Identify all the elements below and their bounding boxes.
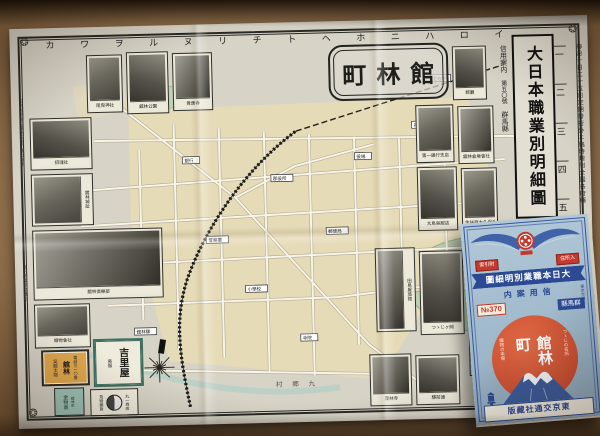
photo-image (460, 108, 491, 151)
photo-image (372, 356, 409, 393)
photo-tile: 招魂社 (29, 117, 92, 170)
grid-letter: ヘ (322, 32, 331, 45)
slogan-right: つゝじの名所 (562, 329, 570, 356)
grid-letter: ワ (80, 38, 89, 51)
photo-image (175, 55, 210, 98)
ad-line: 舘林 (60, 361, 70, 375)
ad-line: 舘林町 (71, 396, 76, 407)
corner-rosette-icon: ❂ (28, 409, 37, 420)
district-label: 村 郷 九 (276, 379, 319, 389)
photo-image (34, 176, 81, 223)
cover-side-note: 東京交通社 (579, 284, 591, 354)
photo-image (129, 54, 166, 101)
grid-letter: ヌ (184, 36, 193, 49)
map-booklet-cover: 索引附 住所入 圖細明別業職本日大 内案用信 №370 縣馬群 館林町 つゝじの… (460, 213, 600, 427)
ad-line: 荒物雜貨 (98, 394, 104, 410)
photo-caption: 舘林公園 (130, 100, 166, 111)
publisher-note: 發行所東京交通社 (18, 265, 30, 375)
ad-side-label: 吳服 (107, 358, 113, 367)
corner-rosette-icon: ❂ (19, 38, 28, 49)
subtitle-line: 信用案内 (497, 45, 508, 73)
photo-tile: 尾曳神社 (86, 54, 123, 113)
photo-tile: 舘林公園 (126, 51, 170, 114)
ad-box-yoshizatoya: 吳服 吉里屋 (93, 338, 144, 387)
map-title: 大日本職業別明細圖 (521, 45, 549, 208)
photo-caption: 舘林倶樂部 (37, 285, 161, 298)
subtitle-line: 群馬縣 (499, 111, 510, 132)
ad-line: 金物商 (62, 394, 69, 409)
photo-caption: 大島吳服店 (421, 217, 455, 228)
grid-number: 五 (557, 198, 570, 213)
photo-image (35, 231, 160, 288)
photo-scene: 舘林驛 郡役所 警察署 郵便局 小學校 役場 銀行 寺院 神社 至佐野 城沼 村… (0, 0, 600, 436)
grid-letter: ホ (356, 31, 365, 44)
grid-number: 一 (553, 46, 566, 61)
grid-number: 四 (556, 160, 569, 175)
photo-tile: 茂林寺 (369, 353, 412, 406)
photo-image (420, 169, 455, 218)
photo-image (418, 107, 451, 150)
photo-caption: 郡廳 (456, 87, 484, 98)
station-mark (158, 339, 166, 354)
ad-box-grocer: 荒物雜貨 丸一商店 (90, 388, 139, 416)
photo-tile: 織物會社 (34, 303, 91, 348)
photo-caption: 招魂社 (33, 156, 89, 167)
photo-caption: 田島屋旅館 (402, 250, 414, 328)
photo-image (422, 253, 462, 322)
photo-image (455, 49, 484, 88)
address-tag: 住所入 (556, 253, 580, 266)
grid-letter: イ (494, 28, 503, 41)
photo-tile: 田島屋旅館 (375, 247, 417, 332)
photo-tile: 舘林倉庫會社 (457, 105, 494, 164)
photo-caption: つゝじヶ岡 (423, 321, 461, 332)
grid-number: 二 (554, 84, 567, 99)
ad-line: 丸一商店 (124, 394, 130, 410)
ad-logo-circle (106, 394, 122, 410)
photo-tile: 舘林城趾 (31, 173, 94, 226)
legend-note: 記號說明官公署學校銀行會社商店 (14, 99, 27, 249)
photo-tile: 大島吳服店 (417, 166, 459, 231)
grid-letter: カ (45, 39, 54, 52)
ad-box-hardware: 金物商 舘林町 (54, 387, 85, 416)
grid-letter: ニ (391, 31, 400, 44)
photo-image (32, 120, 89, 157)
photo-tile: 第一銀行支店 (415, 104, 454, 163)
photo-image (89, 57, 120, 100)
publisher-banner: 版藏社通交京東 (484, 397, 595, 423)
ad-line: 吳服太物 (52, 359, 58, 377)
photo-caption: 茂林寺 (373, 392, 409, 403)
ad-shop-name: 吉里屋 (115, 347, 131, 377)
photo-caption: 驛前通 (419, 391, 457, 402)
grid-letter: ル (149, 36, 158, 49)
ad-line: 電話三一〇番 (72, 356, 79, 380)
serial-number: №370 (477, 303, 507, 317)
map-title-box: 大日本職業別明細圖 (511, 34, 557, 219)
grid-letter: ハ (425, 30, 434, 43)
photo-tile: 郡廳 (452, 45, 487, 100)
ad-box-draper: 吳服太物 舘林 電話三一〇番 (41, 349, 90, 386)
photo-image (464, 170, 495, 217)
index-tag: 索引附 (475, 259, 499, 272)
photo-caption: 織物會社 (38, 334, 88, 345)
photo-caption: 第一銀行支店 (419, 149, 451, 160)
grid-number: 三 (555, 122, 568, 137)
photo-caption: 尾曳神社 (90, 99, 120, 110)
town-name-cartouche: 町林館 (328, 42, 449, 101)
cartouche-inner-border (333, 48, 444, 97)
publication-note: 毎月十日二十五日定期發行外ニ臨時增刊全國各府縣 (574, 43, 587, 223)
photo-caption: 覺應寺 (176, 97, 210, 108)
photo-tile: 驛前通 (415, 354, 460, 405)
grid-letter: チ (253, 34, 262, 47)
grid-letter: ヲ (114, 37, 123, 50)
photo-tile: 覺應寺 (172, 52, 213, 111)
photo-tile: 舘林倶樂部 (32, 227, 164, 300)
photo-caption: 舘林城趾 (80, 176, 91, 222)
slogan-left: 織物の本場 (498, 338, 506, 361)
grid-letter: ト (287, 33, 296, 46)
photo-image (418, 357, 457, 392)
photo-image (378, 251, 404, 330)
photo-image (37, 306, 88, 335)
grid-letter: リ (218, 35, 227, 48)
grid-letter: ロ (460, 29, 469, 42)
photo-caption: 舘林倉庫會社 (461, 150, 491, 161)
subtitle-line: 第五〇號 (499, 80, 509, 104)
photo-tile: つゝじヶ岡 (419, 250, 465, 335)
corner-rosette-icon: ❂ (568, 24, 577, 35)
